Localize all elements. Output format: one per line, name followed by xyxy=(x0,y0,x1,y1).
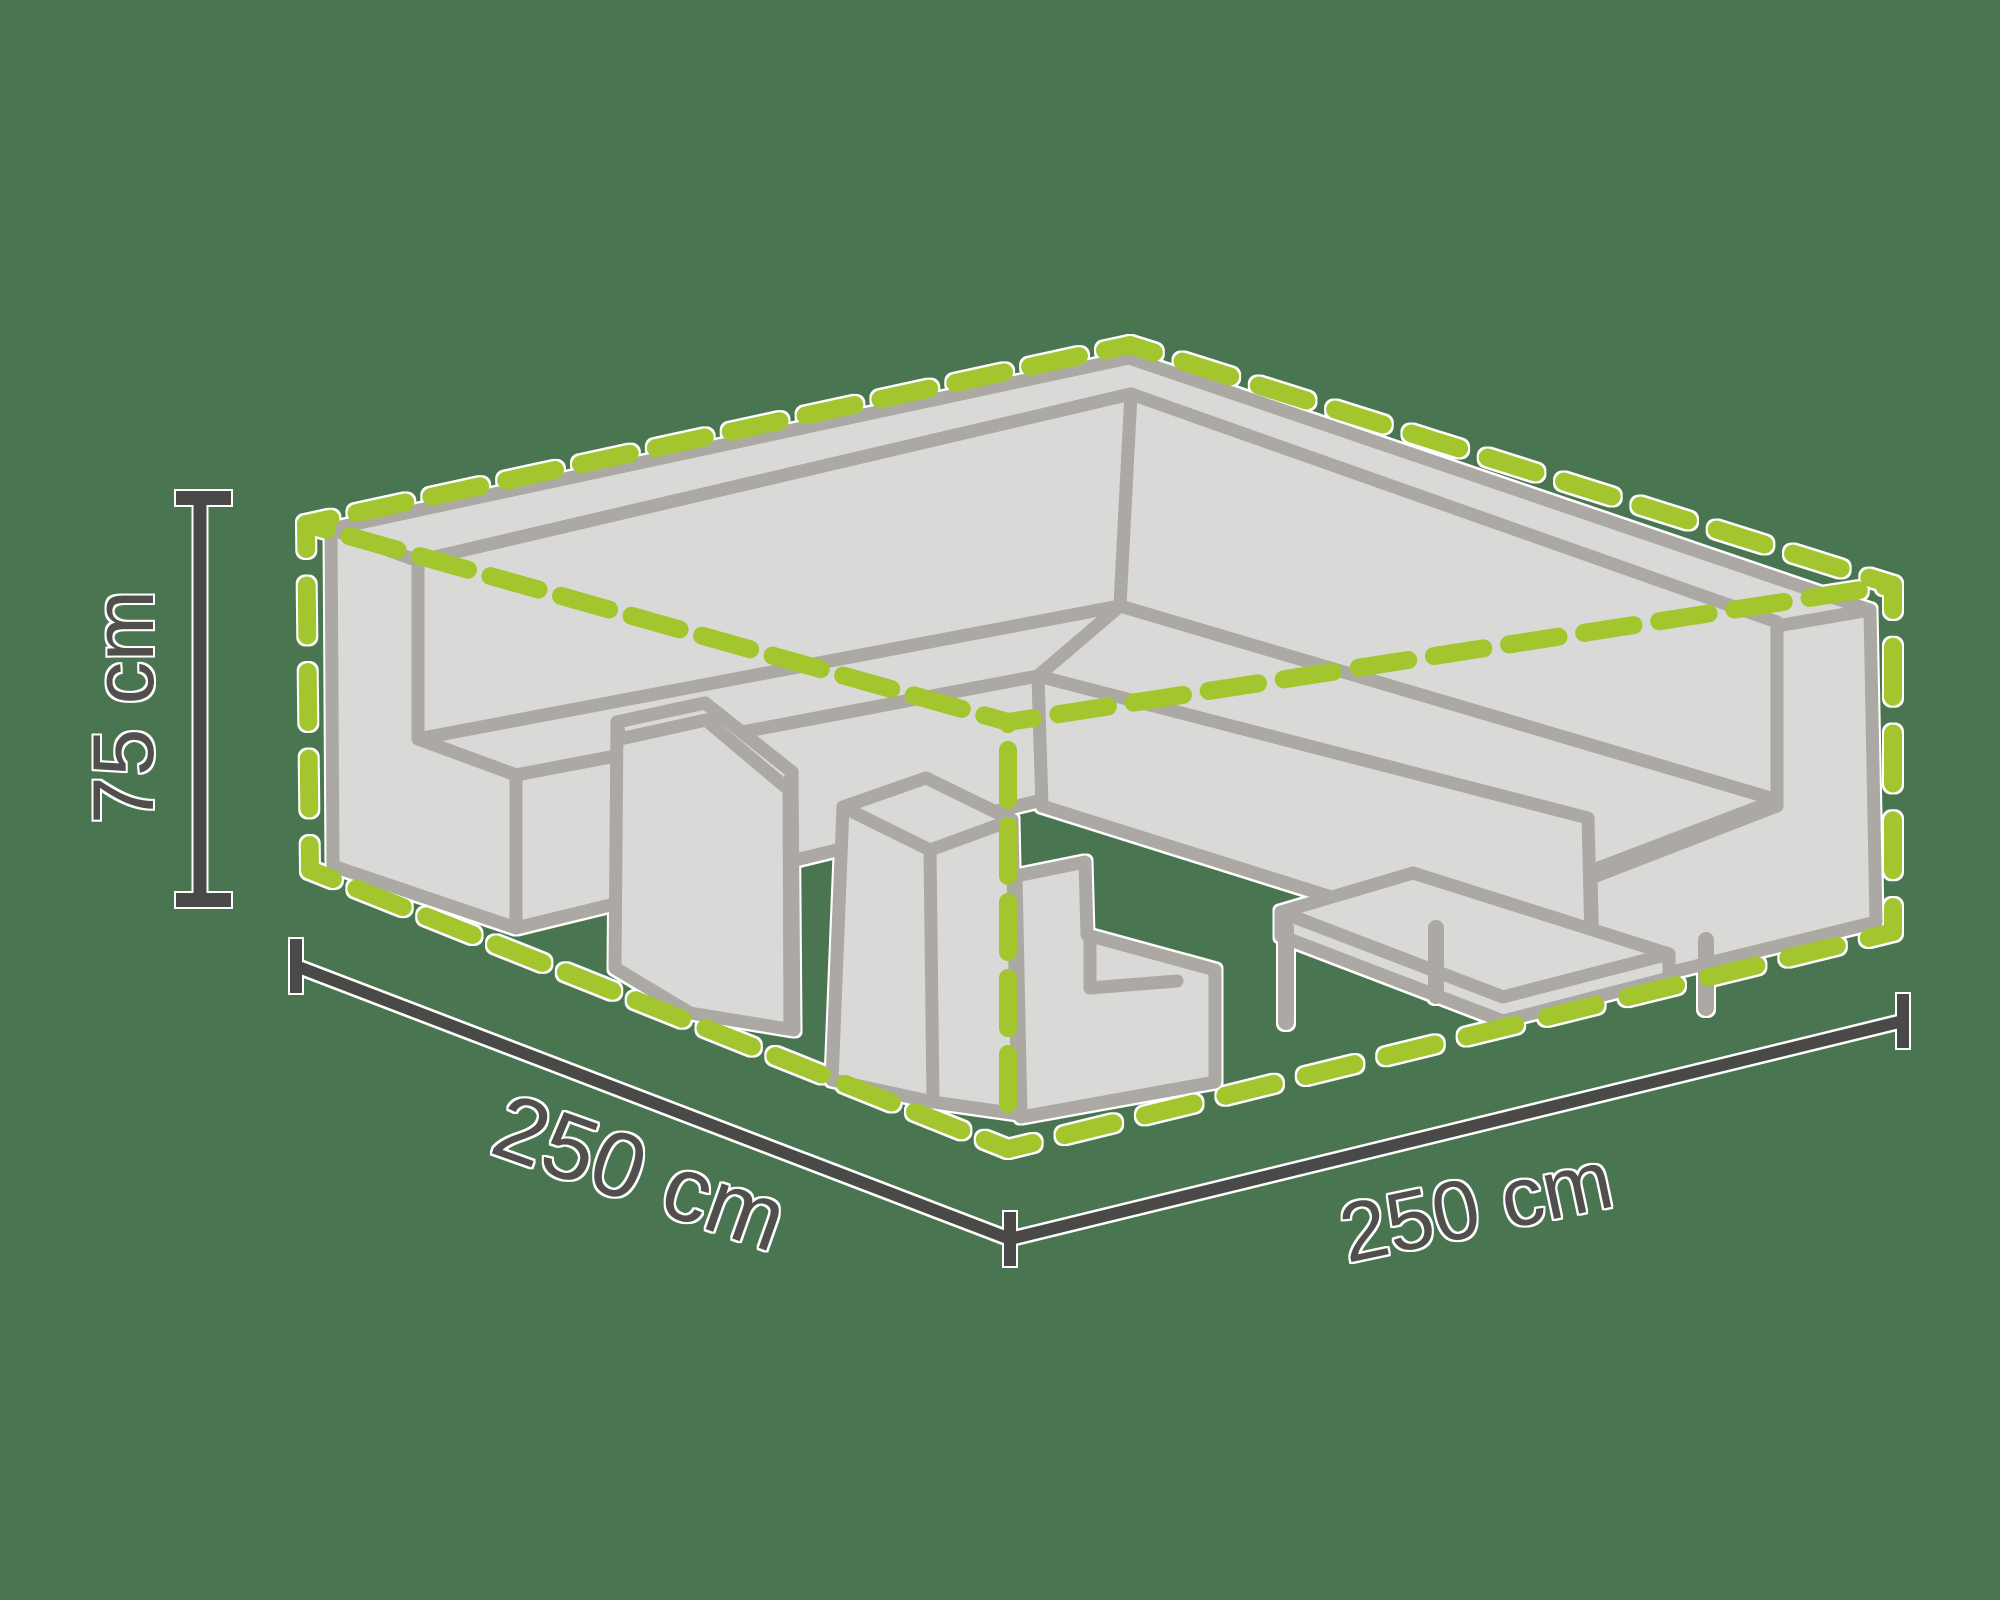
svg-text:75 cm: 75 cm xyxy=(76,590,172,824)
